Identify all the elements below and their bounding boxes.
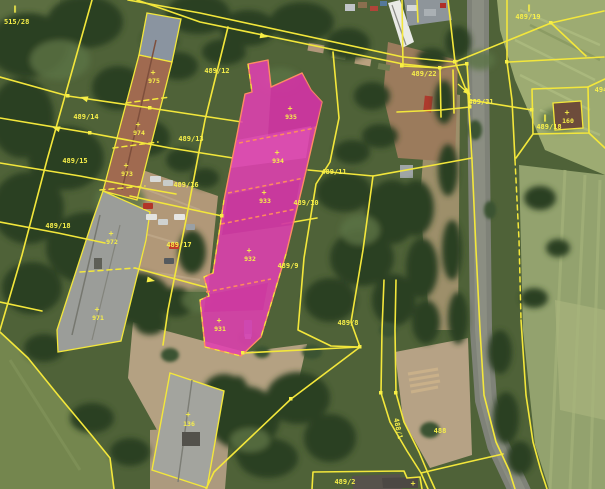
parcel-label-489-19: 489/19 xyxy=(515,13,540,21)
double-bar-marker: ‖ xyxy=(527,4,531,13)
building-cross-marker: + xyxy=(288,104,293,113)
parcel-label-489-12: 489/12 xyxy=(204,67,229,75)
cadastral-map-view[interactable]: ‖ 515/28 489/12 489/13 489/14 489/15 489… xyxy=(0,0,605,489)
building-cross-marker: + xyxy=(275,148,280,157)
parcel-label-489-18-right: 489/18 xyxy=(536,123,561,131)
parcel-label-489-13: 489/13 xyxy=(178,135,203,143)
building-cross-marker: + xyxy=(124,161,129,170)
parcel-label-489-15: 489/15 xyxy=(62,157,87,165)
building-cross-marker: + xyxy=(186,410,191,419)
parcel-label-515-28: 515/28 xyxy=(4,18,29,26)
building-label-932: 932 xyxy=(244,255,256,263)
parcel-label-489-22: 489/22 xyxy=(411,70,436,78)
parcel-label-489-14: 489/14 xyxy=(73,113,98,121)
parcel-label-489-16: 489/16 xyxy=(173,181,198,189)
parcel-line xyxy=(417,0,418,22)
parcel-label-489-10: 489/10 xyxy=(293,199,318,207)
building-cross-marker: + xyxy=(136,120,141,129)
building-label-933: 933 xyxy=(259,197,271,205)
parcel-label-489-8: 489/8 xyxy=(337,319,358,327)
building-label-971: 971 xyxy=(92,314,104,322)
parcel-label-489-9: 489/9 xyxy=(277,262,298,270)
building-label-935: 935 xyxy=(285,113,297,121)
double-bar-marker: ‖ xyxy=(13,5,17,14)
building-label-931: 931 xyxy=(214,325,226,333)
building-label-160: 160 xyxy=(562,117,574,125)
building-cross-marker: + xyxy=(151,68,156,77)
parcel-label-494: 494 xyxy=(595,86,605,94)
building-cross-marker: + xyxy=(217,316,222,325)
building-cross-marker: + xyxy=(565,108,570,117)
parcel-line xyxy=(402,0,403,66)
building-cross-marker: + xyxy=(247,246,252,255)
parcel-label-489-17: 489/17 xyxy=(166,241,191,249)
building-label-934: 934 xyxy=(272,157,284,165)
parcel-label-488: 488 xyxy=(434,427,447,435)
double-bar-marker: ‖ xyxy=(543,114,547,123)
parcel-label-489-31: 489/31 xyxy=(468,98,493,106)
building-cross-marker: + xyxy=(262,188,267,197)
parcel-label-489-18-left: 489/18 xyxy=(45,222,70,230)
building-label-974: 974 xyxy=(133,129,145,137)
parcel-label-489-11: 489/11 xyxy=(321,168,346,176)
parcel-line xyxy=(453,70,454,113)
building-label-975: 975 xyxy=(148,77,160,85)
building-cross-marker: + xyxy=(411,479,416,488)
building-label-136: 136 xyxy=(183,420,195,428)
parcel-label-489-2: 489/2 xyxy=(334,478,355,486)
building-cross-marker: + xyxy=(95,305,100,314)
building-label-972: 972 xyxy=(106,238,118,246)
building-label-973: 973 xyxy=(121,170,133,178)
building-cross-marker: + xyxy=(109,229,114,238)
